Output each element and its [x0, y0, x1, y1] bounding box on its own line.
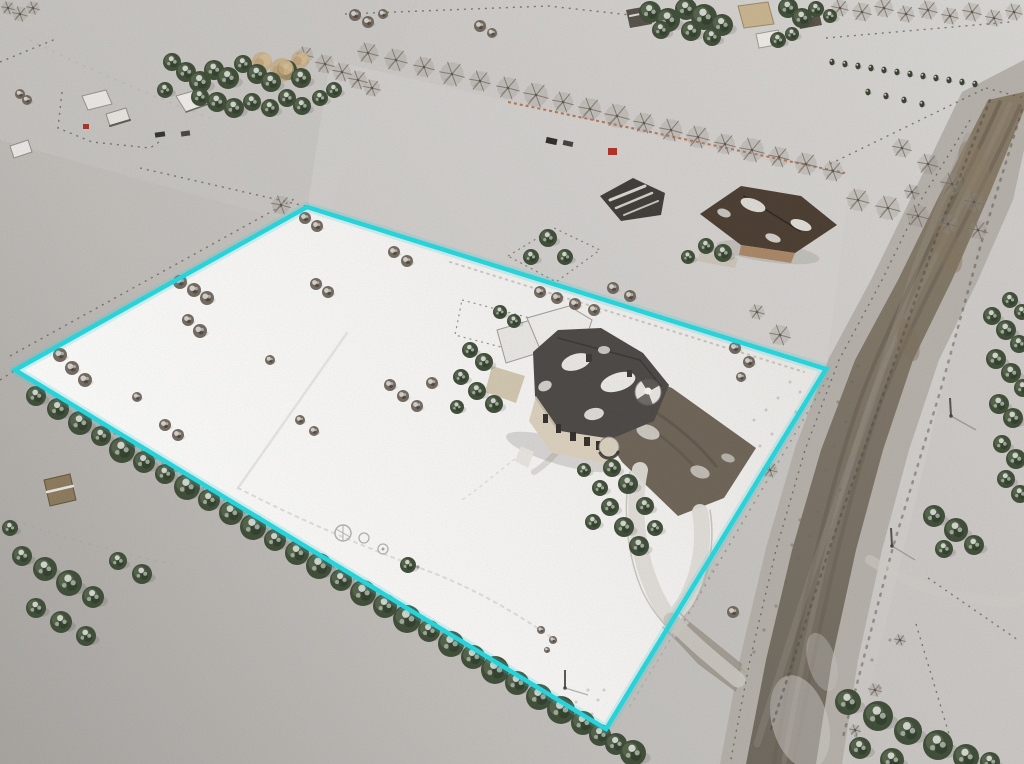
film-grain-light [0, 0, 1024, 764]
aerial-photo-canvas [0, 0, 1024, 764]
aerial-photo [0, 0, 1024, 764]
